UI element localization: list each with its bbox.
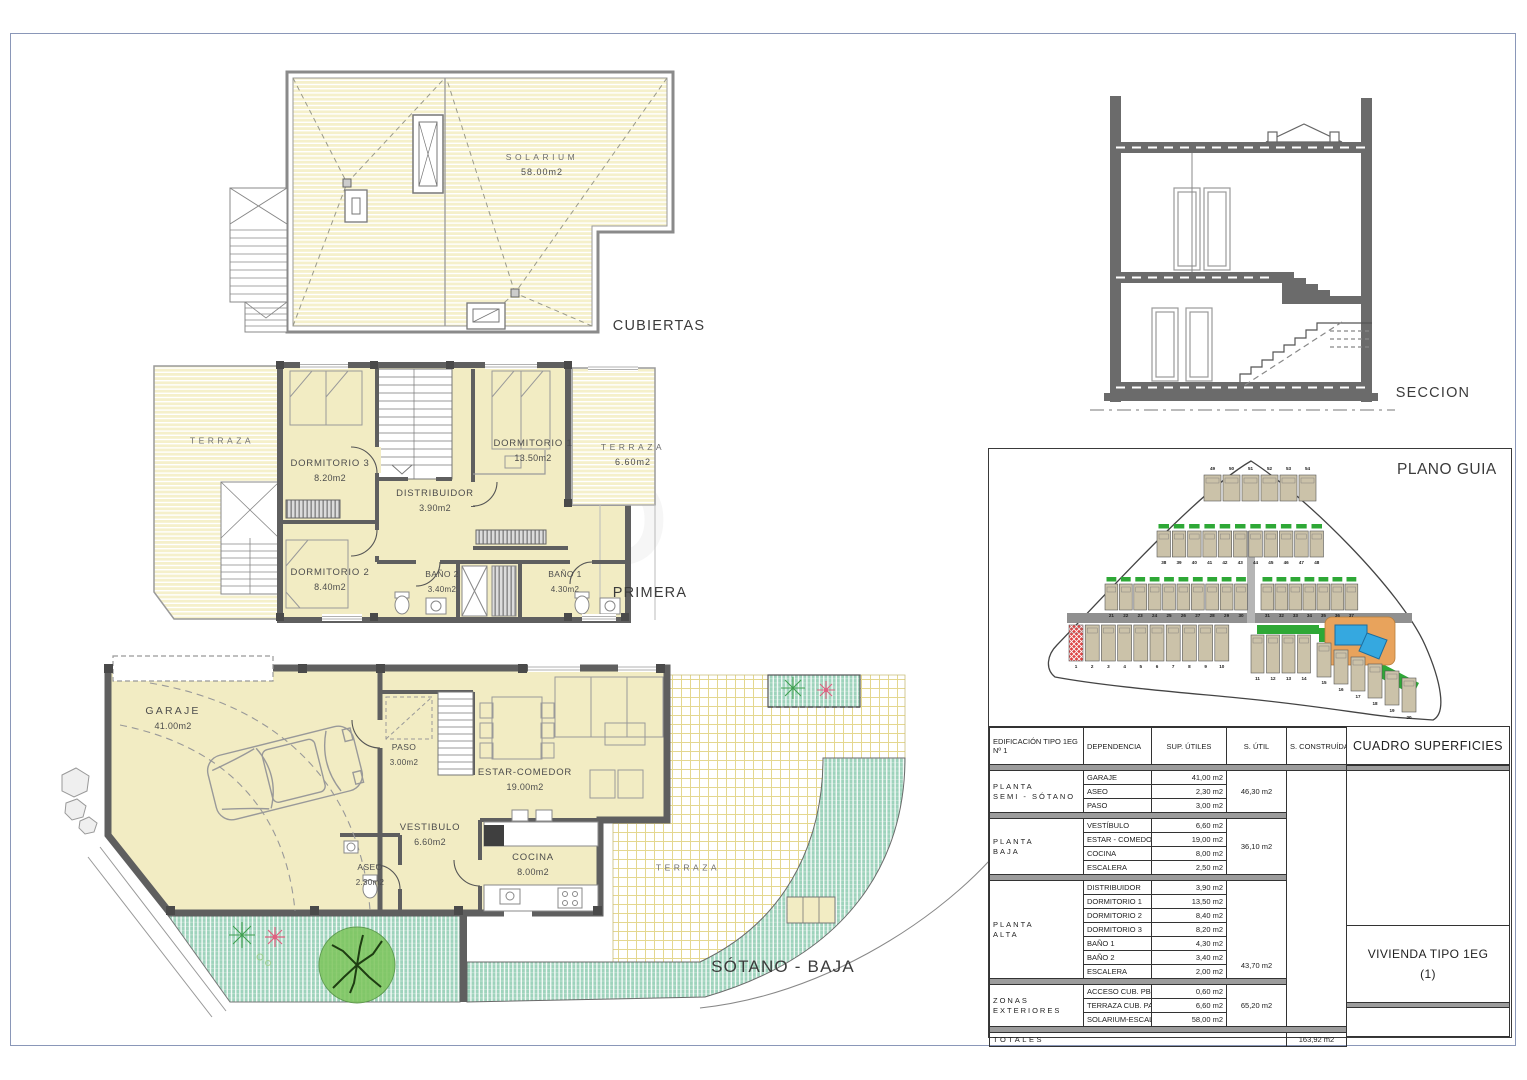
label-dormitorio1: DORMITORIO 113.50m2: [493, 436, 572, 466]
svg-text:13: 13: [1286, 676, 1292, 681]
label-terraza-sotano: TERRAZA: [656, 861, 720, 876]
svg-text:31: 31: [1265, 613, 1271, 618]
cuadro-superficies-header: CUADRO SUPERFICIES: [1346, 727, 1510, 765]
label-bano1: BAÑO 14.30m2: [548, 567, 582, 597]
roof-vent: [467, 303, 505, 329]
section-drawing: [1090, 80, 1490, 420]
svg-text:26: 26: [1181, 613, 1187, 618]
section-stair: [1240, 322, 1372, 385]
svg-text:40: 40: [1192, 560, 1198, 565]
rocks: [62, 768, 97, 834]
label-cocina: COCINA8.00m2: [512, 850, 554, 880]
plot-51: [1242, 475, 1259, 501]
table-header-row: EDIFICACIÓN TIPO 1EGNº 1 DEPENDENCIA SUP…: [990, 728, 1347, 765]
col-edificacion: EDIFICACIÓN TIPO 1EGNº 1: [990, 728, 1084, 765]
svg-text:10: 10: [1219, 664, 1225, 669]
label-dormitorio2: DORMITORIO 28.40m2: [290, 565, 369, 595]
plano-guia-panel: 4950515253543839404142434445464748212223…: [988, 448, 1512, 1038]
stair: [438, 692, 473, 775]
svg-text:5: 5: [1140, 664, 1143, 669]
garage-door: [113, 656, 273, 681]
wardrobe: [476, 530, 546, 544]
svg-text:15: 15: [1321, 680, 1327, 685]
section-doors: [1152, 188, 1230, 381]
svg-text:37: 37: [1349, 613, 1355, 618]
title-plano-guia: PLANO GUIA: [1397, 461, 1497, 479]
table-right-column: CUADRO SUPERFICIES VIVIENDA TIPO 1EG(1): [1346, 727, 1510, 1037]
svg-text:25: 25: [1166, 613, 1172, 618]
label-garaje: GARAJE41.00m2: [145, 704, 200, 734]
title-seccion: SECCION: [1396, 385, 1470, 401]
site-plan-drawing: 4950515253543839404142434445464748212223…: [989, 449, 1510, 726]
scissor-stair: [221, 482, 279, 594]
svg-text:27: 27: [1195, 613, 1201, 618]
tree: [319, 927, 395, 1003]
entrance-stoop: [787, 897, 835, 923]
label-terraza-right: TERRAZA6.60m2: [601, 440, 665, 470]
svg-text:49: 49: [1210, 466, 1216, 471]
lawn: [1257, 625, 1319, 634]
title-cubiertas: CUBIERTAS: [613, 318, 705, 334]
svg-text:38: 38: [1161, 560, 1167, 565]
svg-text:24: 24: [1152, 613, 1158, 618]
svg-text:11: 11: [1255, 676, 1260, 681]
svg-text:9: 9: [1204, 664, 1207, 669]
svg-text:2: 2: [1091, 664, 1094, 669]
svg-text:16: 16: [1338, 687, 1344, 692]
roof-chimney: [345, 190, 367, 222]
label-solarium: SOLARIUM58.00m2: [506, 150, 578, 180]
label-terraza-left: TERRAZA: [190, 434, 254, 449]
svg-text:8: 8: [1188, 664, 1191, 669]
plot-54: [1299, 475, 1316, 501]
svg-text:17: 17: [1355, 694, 1361, 699]
svg-text:42: 42: [1222, 560, 1228, 565]
wardrobe: [286, 500, 340, 518]
plot-53: [1280, 475, 1297, 501]
roof-stair: [230, 188, 287, 332]
label-distribuidor: DISTRIBUIDOR3.90m2: [396, 486, 474, 516]
surface-table-grid: EDIFICACIÓN TIPO 1EGNº 1 DEPENDENCIA SUP…: [989, 727, 1347, 1047]
svg-text:12: 12: [1270, 676, 1276, 681]
planter: [768, 675, 860, 707]
svg-text:54: 54: [1305, 466, 1311, 471]
svg-text:18: 18: [1372, 701, 1378, 706]
svg-text:48: 48: [1314, 560, 1320, 565]
label-bano2: BAÑO 23.40m2: [425, 567, 459, 597]
col-s-construida: S. CONSTRUÍDA: [1287, 728, 1347, 765]
svg-text:32: 32: [1279, 613, 1285, 618]
col-sup-utiles: SUP. ÚTILES: [1152, 728, 1227, 765]
plot-52: [1261, 475, 1278, 501]
svg-text:19: 19: [1389, 708, 1395, 713]
col-s-util: S. ÚTIL: [1227, 728, 1287, 765]
svg-text:6: 6: [1156, 664, 1159, 669]
plot-49: [1204, 475, 1221, 501]
svg-text:3: 3: [1107, 664, 1110, 669]
table-totals-row: TOTALES 163,92 m2: [990, 1033, 1347, 1047]
label-paso: PASO3.00m2: [390, 740, 418, 770]
svg-text:21: 21: [1109, 613, 1115, 618]
label-estar-comedor: ESTAR-COMEDOR19.00m2: [478, 765, 572, 795]
section-skylight: [1266, 124, 1342, 142]
vivienda-cell: VIVIENDA TIPO 1EG(1): [1346, 925, 1510, 1002]
svg-text:39: 39: [1176, 560, 1182, 565]
skylight: [413, 115, 443, 193]
plot-50: [1223, 475, 1240, 501]
svg-text:47: 47: [1299, 560, 1305, 565]
s-construida-cell: [1287, 771, 1347, 1027]
svg-text:36: 36: [1335, 613, 1341, 618]
roof-plan-drawing: [225, 60, 685, 350]
svg-text:33: 33: [1293, 613, 1299, 618]
label-vestibulo: VESTIBULO6.60m2: [400, 820, 461, 850]
svg-text:51: 51: [1248, 466, 1254, 471]
svg-text:34: 34: [1307, 613, 1313, 618]
svg-text:7: 7: [1172, 664, 1175, 669]
svg-text:30: 30: [1238, 613, 1244, 618]
label-aseo: ASEO2.30m2: [356, 860, 384, 890]
svg-text:35: 35: [1321, 613, 1327, 618]
svg-text:4: 4: [1123, 664, 1126, 669]
label-dormitorio3: DORMITORIO 38.20m2: [290, 456, 369, 486]
title-primera: PRIMERA: [613, 585, 687, 601]
architectural-plan-sheet: D: [0, 0, 1527, 1080]
svg-text:22: 22: [1123, 613, 1129, 618]
svg-text:53: 53: [1286, 466, 1292, 471]
svg-text:29: 29: [1224, 613, 1230, 618]
svg-text:41: 41: [1207, 560, 1213, 565]
title-sotano-baja: SÓTANO - BAJA: [711, 957, 855, 977]
svg-text:23: 23: [1138, 613, 1144, 618]
svg-text:14: 14: [1301, 676, 1307, 681]
svg-text:20: 20: [1406, 715, 1412, 720]
terrace-right: [572, 368, 655, 505]
surface-table: EDIFICACIÓN TIPO 1EGNº 1 DEPENDENCIA SUP…: [989, 726, 1510, 1037]
svg-text:1: 1: [1075, 664, 1078, 669]
svg-text:50: 50: [1229, 466, 1235, 471]
stairwell: [377, 369, 452, 479]
svg-text:28: 28: [1210, 613, 1216, 618]
table-row: PLANTASEMI - SÓTANO GARAJE41,00 m2 46,30…: [990, 771, 1347, 785]
svg-text:44: 44: [1253, 560, 1259, 565]
svg-text:46: 46: [1284, 560, 1290, 565]
ground-floor-drawing: [60, 625, 970, 1010]
col-dependencia: DEPENDENCIA: [1084, 728, 1152, 765]
svg-text:43: 43: [1238, 560, 1244, 565]
svg-text:52: 52: [1267, 466, 1273, 471]
svg-text:45: 45: [1268, 560, 1274, 565]
